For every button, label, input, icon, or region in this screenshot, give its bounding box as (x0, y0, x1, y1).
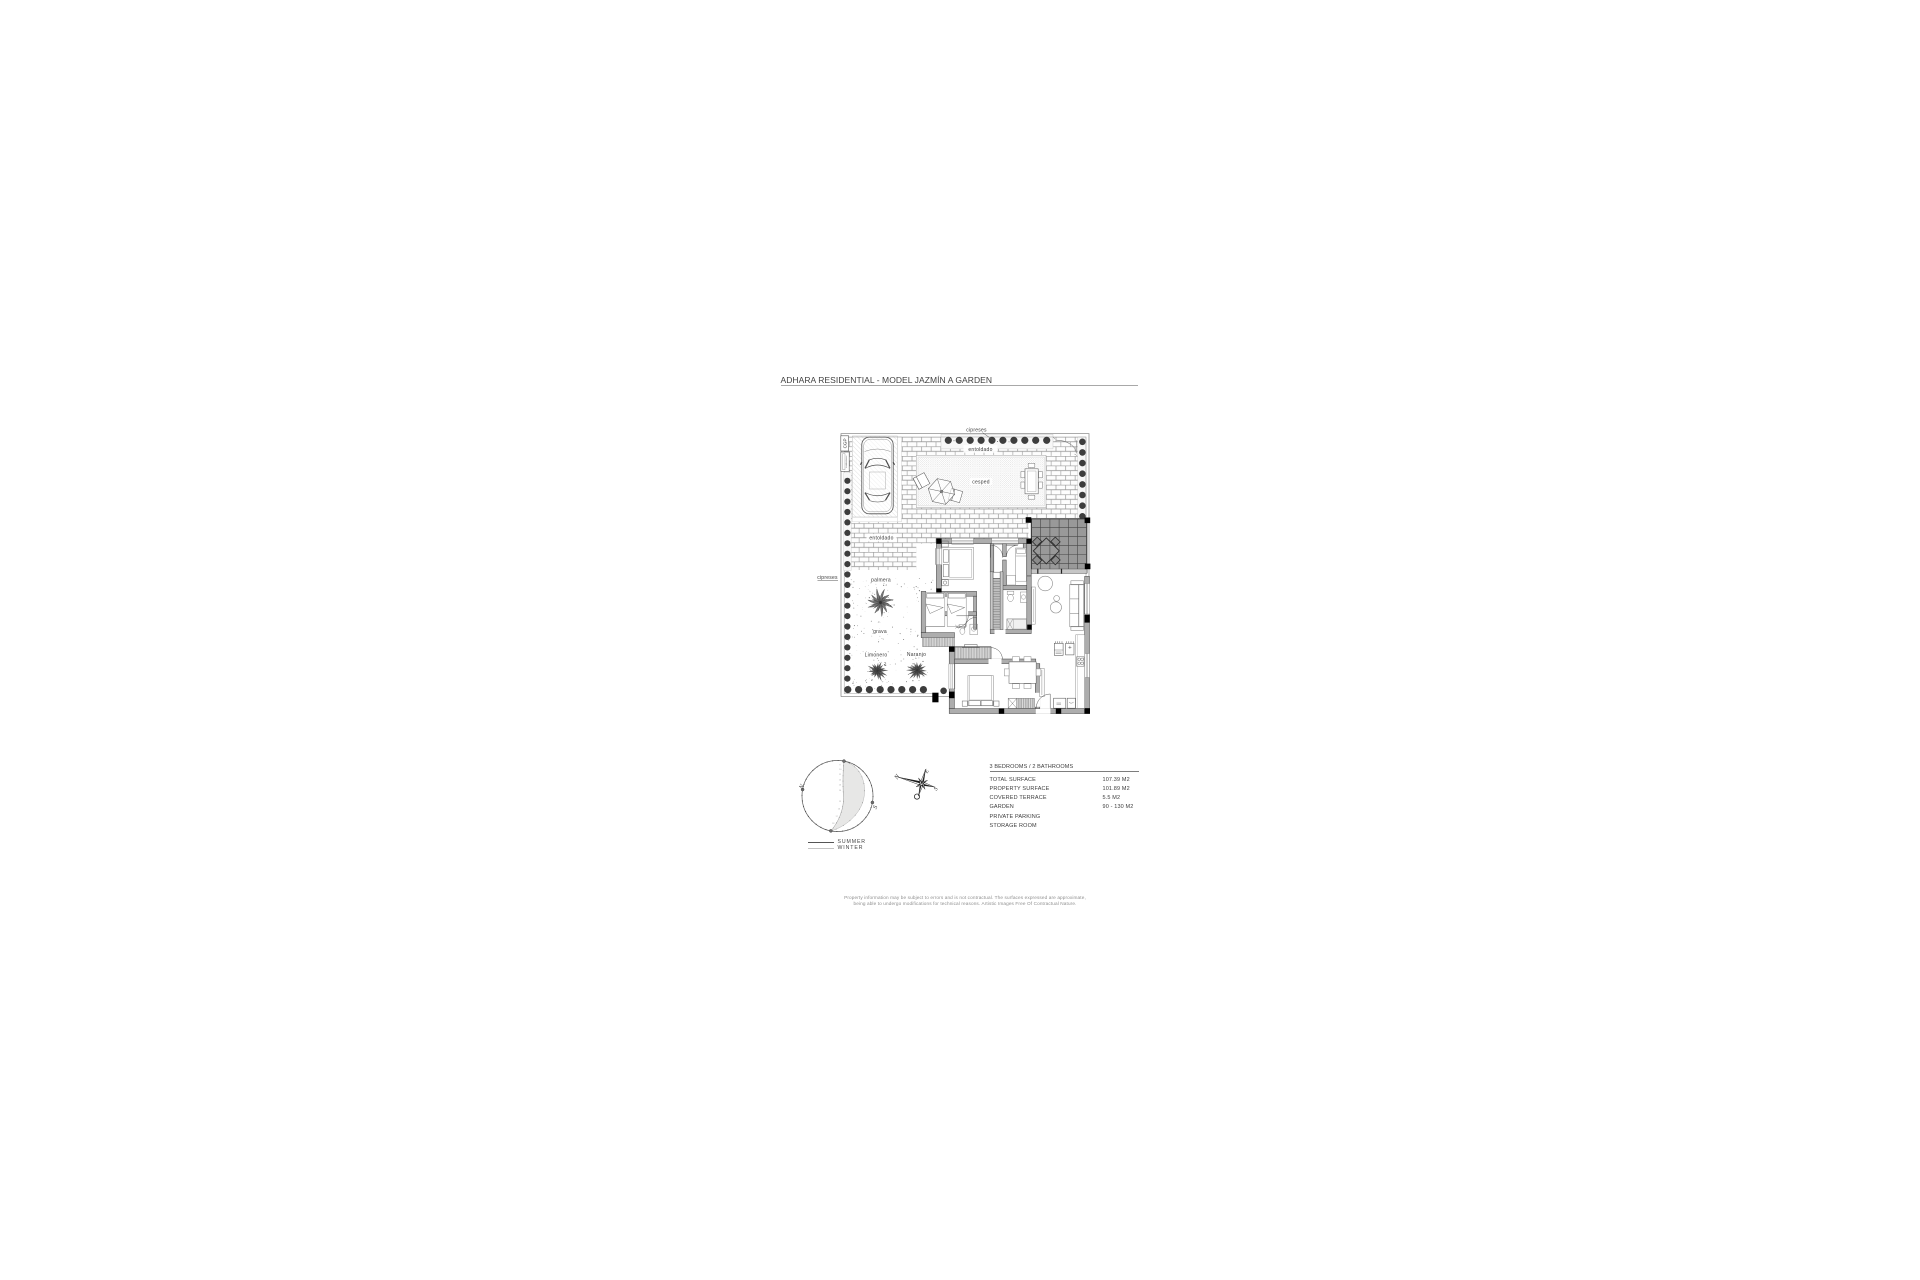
svg-text:10: 10 (839, 769, 842, 771)
svg-text:Naranjo: Naranjo (907, 652, 926, 658)
svg-text:cipreses: cipreses (817, 575, 838, 581)
svg-text:S: S (933, 786, 940, 792)
svg-text:N: N (798, 783, 807, 792)
svg-text:entoldado: entoldado (869, 536, 893, 542)
svg-text:16: 16 (838, 809, 841, 811)
svg-text:12: 12 (839, 779, 842, 781)
svg-text:N: N (893, 773, 902, 782)
svg-text:cipreses: cipreses (966, 427, 987, 433)
svg-text:9: 9 (839, 764, 841, 766)
svg-text:cesped: cesped (972, 479, 990, 485)
svg-text:entoldado: entoldado (968, 447, 992, 453)
svg-text:S: S (872, 804, 880, 811)
svg-text:11: 11 (839, 774, 842, 776)
svg-text:15: 15 (839, 801, 842, 803)
svg-text:CGP: CGP (842, 438, 847, 448)
svg-text:grava: grava (873, 629, 887, 635)
svg-text:17: 17 (836, 816, 839, 818)
svg-text:instalaciones: instalaciones (845, 456, 848, 468)
svg-text:Limonero: Limonero (865, 652, 888, 658)
svg-text:18: 18 (832, 823, 835, 825)
svg-text:13: 13 (839, 785, 842, 787)
svg-text:14: 14 (839, 790, 842, 792)
svg-text:palmera: palmera (871, 578, 891, 584)
